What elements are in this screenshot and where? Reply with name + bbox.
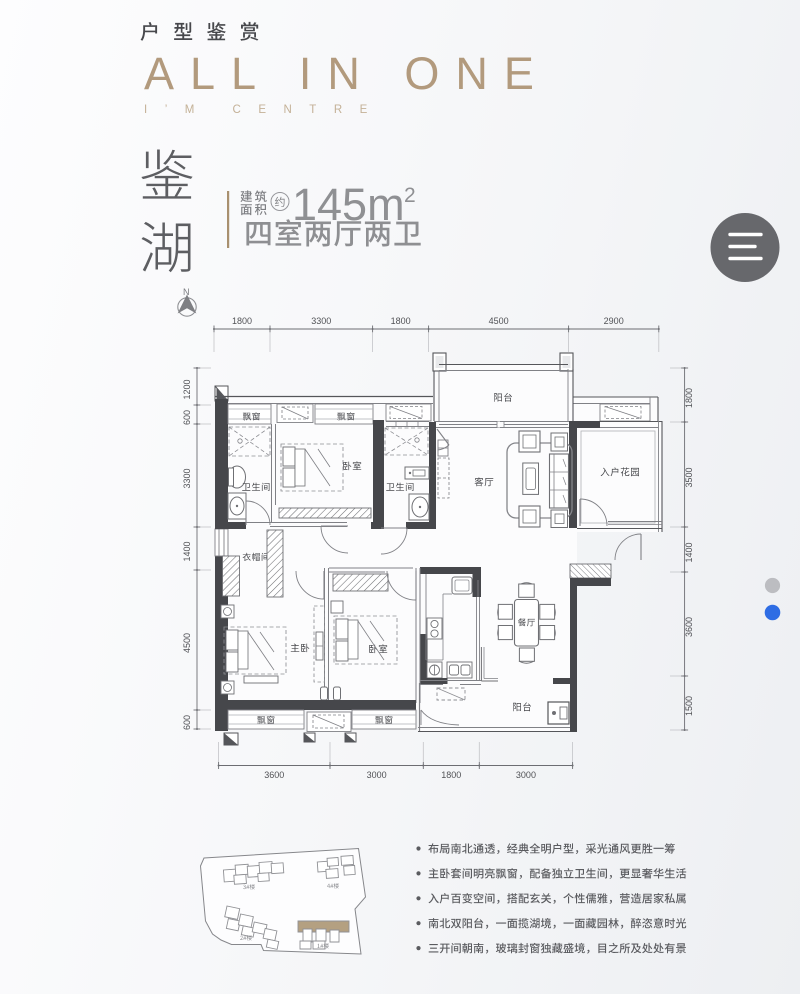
- svg-text:3000: 3000: [367, 770, 387, 780]
- svg-text:1500: 1500: [684, 696, 694, 716]
- svg-text:1800: 1800: [391, 316, 411, 326]
- svg-text:2: 2: [404, 184, 416, 207]
- svg-text:600: 600: [182, 410, 192, 425]
- svg-text:4500: 4500: [489, 316, 509, 326]
- svg-text:1400: 1400: [684, 542, 694, 562]
- svg-text:1400: 1400: [182, 541, 192, 561]
- svg-text:I’M CENTRE: I’M CENTRE: [144, 104, 385, 116]
- svg-text:3300: 3300: [182, 468, 192, 488]
- svg-text:4500: 4500: [182, 633, 192, 653]
- svg-text:N: N: [183, 287, 190, 297]
- svg-text:1800: 1800: [684, 388, 694, 408]
- svg-text:ALL IN ONE: ALL IN ONE: [144, 48, 550, 99]
- svg-text:1800: 1800: [232, 316, 252, 326]
- svg-text:3000: 3000: [516, 770, 536, 780]
- svg-text:600: 600: [182, 715, 192, 730]
- svg-text:3300: 3300: [311, 316, 331, 326]
- svg-text:3500: 3500: [684, 467, 694, 487]
- svg-text:1200: 1200: [182, 379, 192, 399]
- svg-text:3600: 3600: [684, 617, 694, 637]
- svg-text:1800: 1800: [441, 770, 461, 780]
- svg-text:3600: 3600: [264, 770, 284, 780]
- svg-text:2900: 2900: [604, 316, 624, 326]
